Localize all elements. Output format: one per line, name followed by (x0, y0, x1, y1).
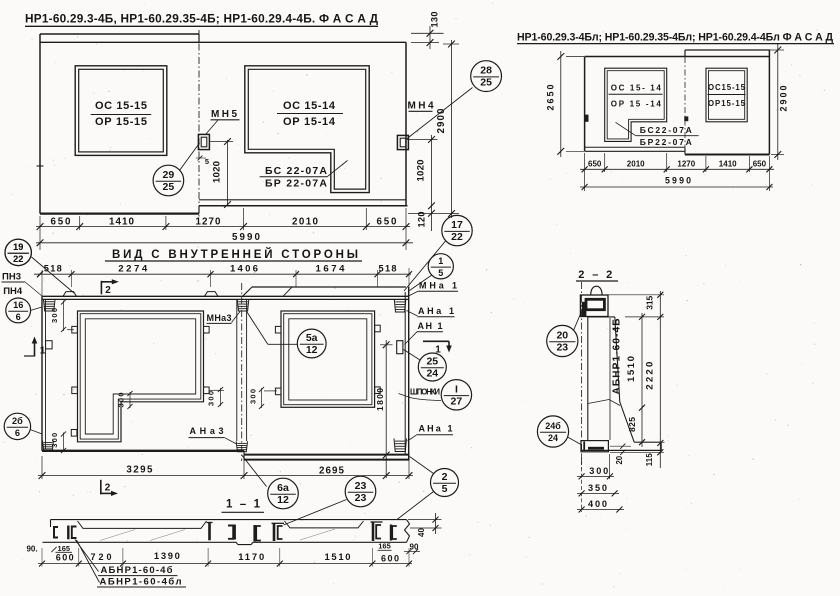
svg-text:300: 300 (117, 393, 126, 408)
svg-text:I: I (455, 383, 458, 395)
svg-text:22: 22 (13, 254, 23, 264)
svg-text:МНа 1: МНа 1 (419, 281, 457, 291)
svg-text:1410: 1410 (719, 159, 737, 168)
svg-text:16: 16 (13, 300, 23, 310)
svg-text:1800: 1800 (375, 388, 385, 411)
svg-text:1: 1 (40, 346, 46, 357)
svg-text:24: 24 (426, 368, 438, 380)
svg-text:2: 2 (105, 285, 111, 296)
svg-text:518: 518 (44, 263, 62, 273)
svg-text:АНа 1: АНа 1 (418, 306, 454, 316)
svg-text:6: 6 (16, 312, 21, 322)
svg-text:6а: 6а (277, 482, 289, 494)
svg-text:ПН3: ПН3 (2, 272, 21, 283)
svg-text:25: 25 (163, 181, 175, 193)
svg-text:825: 825 (627, 417, 637, 432)
svg-text:1170: 1170 (238, 551, 264, 562)
svg-text:ОС 15-15: ОС 15-15 (95, 100, 147, 112)
svg-text:2695: 2695 (319, 466, 345, 477)
svg-text:1 – 1: 1 – 1 (226, 499, 261, 511)
svg-text:НР1-60.29.3-4Б, НР1-60.29.35-4: НР1-60.29.3-4Б, НР1-60.29.35-4Б; НР1-60.… (25, 11, 379, 25)
svg-text:АБНР1-60-4б: АБНР1-60-4б (101, 565, 173, 576)
svg-text:300: 300 (589, 466, 608, 476)
svg-text:28: 28 (480, 65, 492, 77)
svg-text:650: 650 (588, 159, 602, 168)
svg-text:19: 19 (13, 242, 23, 252)
svg-text:2900: 2900 (436, 108, 447, 134)
svg-text:1: 1 (438, 256, 443, 266)
svg-text:2650: 2650 (546, 85, 556, 111)
svg-text:2: 2 (105, 482, 111, 493)
svg-text:2274: 2274 (118, 263, 148, 274)
svg-text:650: 650 (753, 159, 767, 168)
svg-text:25: 25 (426, 356, 438, 368)
svg-text:ОС 15-14: ОС 15-14 (283, 100, 336, 112)
svg-text:23: 23 (556, 342, 568, 354)
svg-text:2010: 2010 (292, 216, 319, 227)
svg-text:400: 400 (588, 499, 607, 509)
svg-text:2б: 2б (12, 416, 23, 426)
svg-text:ОС 15- 14: ОС 15- 14 (611, 84, 662, 93)
svg-text:АБНР1-60-4бл: АБНР1-60-4бл (100, 576, 182, 587)
svg-text:5990: 5990 (232, 232, 261, 243)
svg-text:5: 5 (205, 157, 209, 166)
svg-text:315: 315 (644, 296, 654, 310)
svg-text:5а: 5а (306, 332, 318, 344)
svg-text:600: 600 (56, 553, 74, 563)
svg-text:130: 130 (430, 12, 440, 28)
svg-text:23: 23 (355, 492, 367, 504)
svg-text:20: 20 (615, 455, 624, 464)
svg-text:29: 29 (163, 169, 175, 181)
svg-text:12: 12 (306, 344, 318, 356)
svg-text:300: 300 (248, 389, 257, 404)
svg-text:20: 20 (556, 330, 568, 342)
svg-text:2 – 2: 2 – 2 (578, 269, 612, 281)
svg-text:27: 27 (451, 395, 463, 407)
svg-text:90.: 90. (26, 545, 37, 554)
svg-text:1390: 1390 (154, 550, 180, 561)
svg-text:24: 24 (548, 433, 558, 443)
svg-text:ОС15-15: ОС15-15 (708, 83, 746, 92)
svg-text:1020: 1020 (212, 161, 223, 183)
svg-text:ОР 15-15: ОР 15-15 (95, 116, 147, 128)
svg-text:518: 518 (379, 263, 397, 273)
svg-text:12: 12 (277, 494, 289, 506)
svg-text:300: 300 (50, 433, 59, 448)
svg-text:ПН4: ПН4 (3, 286, 23, 297)
svg-text:ОР 15 -14: ОР 15 -14 (611, 99, 662, 108)
svg-text:БР 22-07А: БР 22-07А (265, 178, 327, 190)
svg-text:115: 115 (645, 453, 654, 467)
svg-text:3295: 3295 (126, 464, 153, 475)
svg-text:1410: 1410 (109, 216, 135, 227)
svg-text:2900: 2900 (779, 86, 789, 112)
svg-text:350: 350 (588, 483, 607, 493)
svg-text:АН 1: АН 1 (418, 321, 443, 331)
svg-text:120: 120 (417, 212, 427, 228)
svg-text:5: 5 (438, 268, 443, 278)
svg-text:1510: 1510 (626, 356, 637, 382)
svg-text:МН5: МН5 (211, 109, 237, 120)
svg-text:ОР 15-14: ОР 15-14 (283, 116, 336, 128)
svg-text:1020: 1020 (416, 160, 427, 182)
svg-text:23: 23 (355, 480, 367, 492)
svg-text:300: 300 (50, 308, 59, 323)
svg-text:600: 600 (381, 554, 399, 564)
svg-text:25: 25 (480, 77, 492, 89)
svg-text:22: 22 (451, 231, 463, 243)
svg-text:2: 2 (442, 471, 448, 483)
svg-text:650: 650 (377, 216, 398, 227)
svg-text:40: 40 (417, 528, 426, 537)
svg-text:6: 6 (15, 428, 20, 438)
svg-text:165: 165 (378, 542, 391, 551)
svg-text:МН4: МН4 (408, 101, 434, 112)
svg-text:17: 17 (451, 219, 463, 231)
svg-text:720: 720 (91, 552, 112, 562)
svg-text:300: 300 (207, 391, 216, 406)
svg-text:ШПОНКИ: ШПОНКИ (410, 387, 440, 396)
svg-text:БС 22-07А: БС 22-07А (265, 165, 327, 177)
svg-text:24б: 24б (545, 421, 561, 431)
svg-text:2010: 2010 (627, 159, 645, 168)
svg-text:НР1-60.29.3-4Бл; НР1-60.29.35-: НР1-60.29.3-4Бл; НР1-60.29.35-4Бл; НР1-6… (517, 31, 833, 43)
svg-text:МНа3: МНа3 (207, 313, 232, 323)
svg-text:5: 5 (442, 483, 448, 495)
svg-text:1270: 1270 (677, 159, 695, 168)
svg-text:1674: 1674 (316, 263, 346, 274)
svg-text:АБНР1-60-4Б: АБНР1-60-4Б (611, 319, 622, 395)
svg-text:650: 650 (51, 216, 72, 227)
svg-text:ОР15-15: ОР15-15 (708, 99, 746, 108)
svg-text:1270: 1270 (196, 216, 222, 227)
svg-text:АНа 1: АНа 1 (419, 424, 453, 434)
